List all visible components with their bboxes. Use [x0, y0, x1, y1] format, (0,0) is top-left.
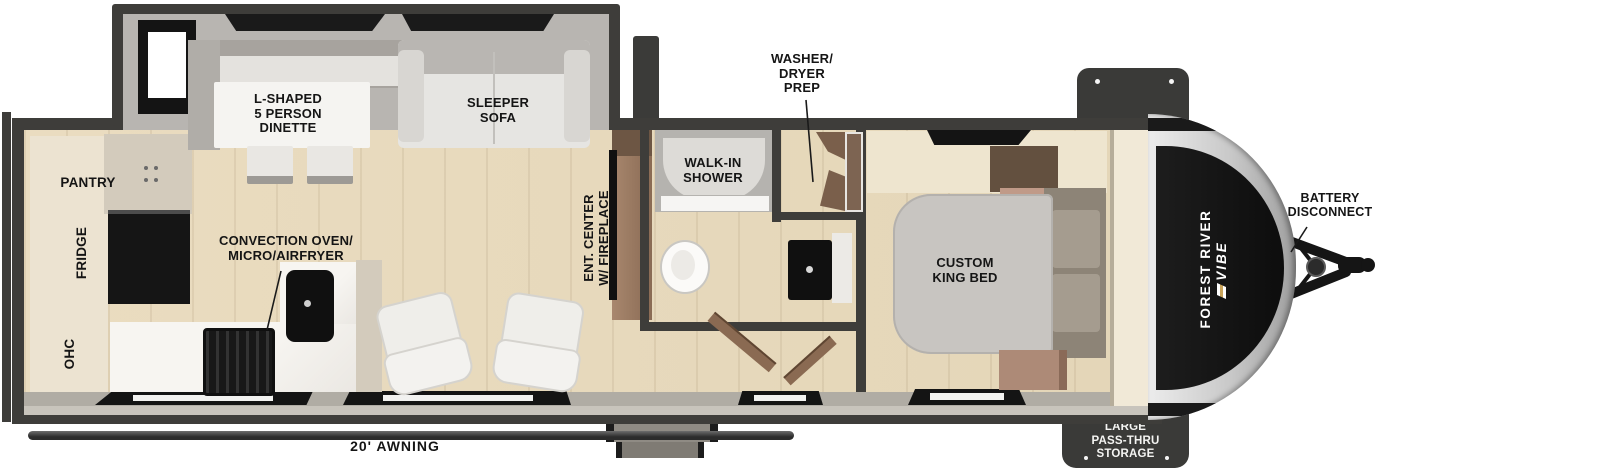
vibe-logo-mark [1217, 283, 1226, 299]
cabinet-knob [154, 178, 158, 182]
upper-cabinets [104, 134, 192, 214]
closet-wall-bottom [775, 212, 858, 220]
ohc-label: OHC [60, 324, 80, 384]
cabinet-knob [144, 166, 148, 170]
brand-manufacturer: FOREST RIVER [1198, 210, 1213, 329]
walk-in-shower-label: WALK-IN SHOWER [648, 156, 778, 185]
cabinet-knob [154, 166, 158, 170]
kitchen-sink [286, 270, 334, 342]
hitch-ball-tip [1361, 258, 1375, 272]
screw-dot [1095, 79, 1100, 84]
king-bed-label: CUSTOM KING BED [905, 256, 1025, 285]
awning-label: 20' AWNING [300, 439, 490, 455]
body-wall-rear [12, 118, 24, 422]
convection-label: CONVECTION OVEN/ MICRO/AIRFRYER [186, 234, 386, 263]
dinette-seat [247, 146, 293, 184]
hall-mirror-panel [845, 132, 863, 212]
floorplan-canvas: LARGE PASS-THRU STORAGE 20' AWNING L-SH [0, 0, 1600, 475]
bedroom-wardrobe [990, 146, 1058, 192]
cooktop-stove [203, 328, 275, 396]
ent-center-label: ENT. CENTER W/ FIREPLACE [580, 163, 614, 313]
dinette-label: L-SHAPED 5 PERSON DINETTE [232, 92, 344, 136]
rear-bumper [2, 112, 11, 422]
headboard-cushion [1052, 210, 1100, 268]
dinette-seat [307, 146, 353, 184]
swivel-chair [490, 290, 585, 394]
window-pane [930, 393, 1004, 400]
washer-dryer-label: WASHER/ DRYER PREP [756, 52, 848, 96]
entry-window [738, 391, 823, 405]
sofa-armrest [564, 50, 590, 142]
body-skirt [24, 406, 1162, 415]
tongue-jack [1307, 258, 1325, 276]
bed-headboard [1044, 188, 1106, 358]
cap-bottom-trim [1148, 403, 1258, 416]
slideout-top-window-1 [225, 14, 385, 31]
brand-model: VIBE [1214, 241, 1229, 281]
body-wall-bottom [12, 415, 1162, 424]
sleeper-sofa [398, 40, 590, 148]
dinette-back-bench [188, 40, 414, 88]
shower-threshold [660, 195, 770, 212]
exterior-vent-panel [633, 36, 659, 122]
window-pane [383, 395, 533, 401]
battery-disconnect-label: BATTERY DISCONNECT [1278, 191, 1382, 219]
living-window [343, 391, 571, 405]
vanity-counter [832, 233, 852, 303]
window-pane [148, 32, 186, 98]
sofa-armrest [398, 50, 424, 142]
screw-dot [1169, 79, 1174, 84]
bedroom-window-bottom [908, 389, 1026, 405]
vanity-sink [788, 240, 832, 300]
refrigerator [108, 210, 190, 304]
bed-footstool [999, 350, 1067, 390]
slideout-top-window-2 [402, 14, 554, 31]
headboard-cushion [1052, 274, 1100, 332]
bath-wall-bottom [640, 322, 858, 331]
window-pane [754, 395, 806, 401]
brand-logo-block: FOREST RIVER VIBE [1190, 179, 1236, 359]
toilet [660, 240, 710, 294]
cabinet-knob [144, 178, 148, 182]
cap-top-trim [1148, 118, 1258, 131]
pantry-label: PANTRY [38, 175, 138, 190]
faucet-dot [304, 300, 311, 307]
sleeper-sofa-label: SLEEPER SOFA [438, 96, 558, 125]
fridge-label: FRIDGE [72, 213, 92, 293]
faucet-dot [806, 266, 813, 273]
entry-step-lower [616, 442, 704, 458]
bedroom-window-top [927, 130, 1031, 145]
pass-thru-storage-label: LARGE PASS-THRU STORAGE [1062, 421, 1189, 462]
toilet-seat [671, 250, 695, 280]
